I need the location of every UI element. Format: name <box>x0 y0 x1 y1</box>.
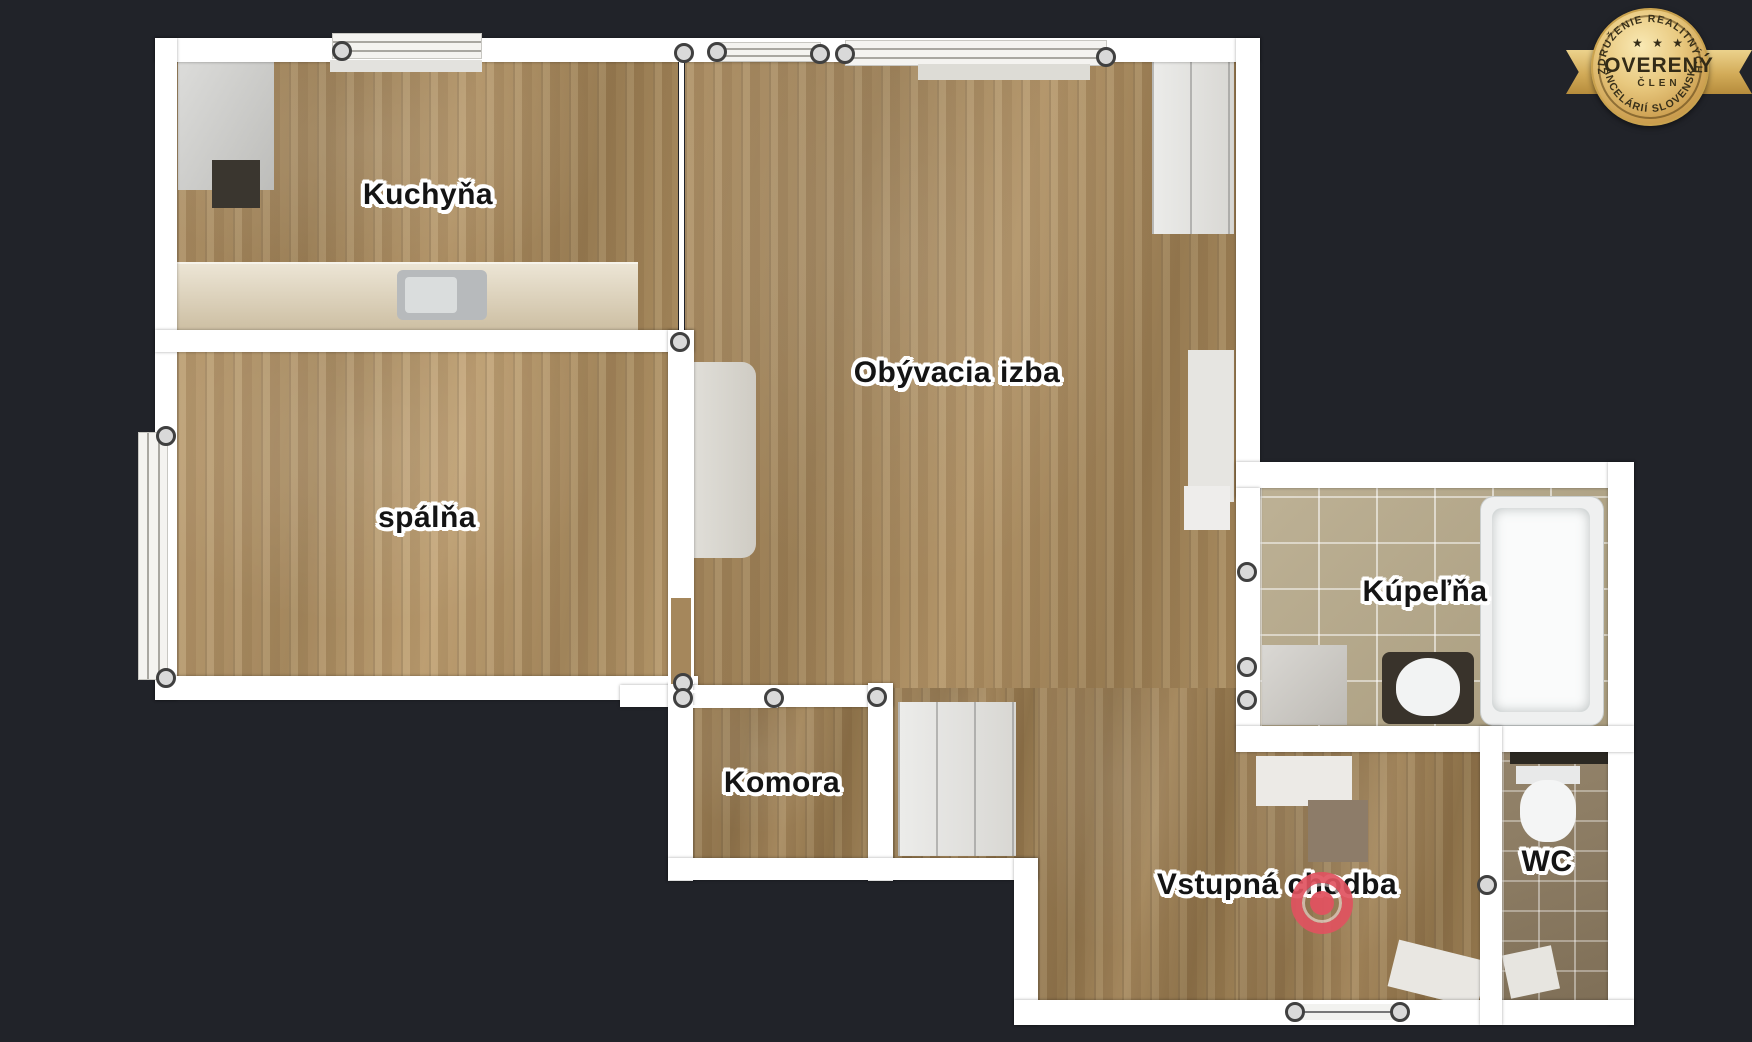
wall-node <box>707 42 727 62</box>
floorplan-canvas: Kuchyňa Obývacia izba spálňa Komora Kúpe… <box>0 0 1752 1042</box>
hall-cabinet <box>1256 756 1352 806</box>
bathtub-basin <box>1492 508 1590 712</box>
cabinet-top-view <box>1184 486 1230 530</box>
room-label-obyvacia: Obývacia izba <box>854 356 1061 390</box>
wall-segment <box>668 683 693 881</box>
window-sill <box>330 60 482 72</box>
wall-segment <box>1236 726 1634 752</box>
wall-node <box>156 668 176 688</box>
room-label-wc: WC <box>1522 845 1573 879</box>
balcony-door-top <box>717 42 821 62</box>
wall-node <box>810 44 830 64</box>
wc-toilet-top-view <box>1520 780 1576 842</box>
room-label-vstupna: Vstupná chodba <box>1157 868 1397 902</box>
wall-node <box>867 687 887 707</box>
verified-member-badge: ZDRUŽENIE REALITNÝCH KANCELÁRIÍ SLOVENSK… <box>1566 6 1752 128</box>
badge-subtitle: ČLEN <box>1566 78 1752 89</box>
wall-segment <box>155 330 694 352</box>
door-opening-bedroom <box>668 598 694 684</box>
wall-node <box>1477 875 1497 895</box>
wall-segment <box>1236 38 1260 498</box>
room-floor-vstupna <box>1038 688 1238 1000</box>
cabinet-top-view <box>1188 350 1234 502</box>
wall-node <box>1237 657 1257 677</box>
wall-node <box>674 43 694 63</box>
wall-segment <box>868 683 893 881</box>
wall-segment <box>668 858 1038 880</box>
wall-node <box>1390 1002 1410 1022</box>
wall-node <box>1096 47 1116 67</box>
wall-segment <box>1236 462 1634 488</box>
toilet-top-view <box>1396 658 1460 716</box>
badge-stars: ★ ★ ★ <box>1566 36 1752 50</box>
wardrobe-top-view <box>1152 62 1234 234</box>
wall-node <box>835 44 855 64</box>
bathroom-sink-unit <box>1262 645 1347 725</box>
wall-node <box>332 41 352 61</box>
wall-segment <box>155 676 698 700</box>
wall-node <box>764 688 784 708</box>
wall-node <box>670 332 690 352</box>
hall-wardrobe-top-view <box>898 702 1016 856</box>
room-label-komora: Komora <box>724 766 840 800</box>
entry-door <box>1292 1004 1404 1020</box>
stove-top-view <box>212 160 260 208</box>
kitchen-sink-basin <box>405 277 457 313</box>
location-target-dot <box>1310 891 1334 915</box>
wc-wall-gap <box>1510 752 1608 764</box>
room-label-spalna: spálňa <box>378 501 476 535</box>
hall-shoe-box <box>1308 800 1368 862</box>
window-kitchen <box>332 33 482 59</box>
wall-node <box>673 688 693 708</box>
wall-node <box>1237 690 1257 710</box>
balcony-door-bedroom <box>138 432 168 680</box>
window-living <box>845 40 1107 66</box>
wall-edit-line <box>679 60 684 600</box>
wall-node <box>156 426 176 446</box>
wall-node <box>1285 1002 1305 1022</box>
door-komora <box>678 690 778 708</box>
wall-node <box>1237 562 1257 582</box>
badge-title: OVERENÝ <box>1566 54 1752 78</box>
sofa-top-view <box>694 362 756 558</box>
room-label-kupelna: Kúpeľňa <box>1362 575 1487 609</box>
room-label-kuchyna: Kuchyňa <box>363 178 493 212</box>
window-sill <box>918 64 1090 80</box>
